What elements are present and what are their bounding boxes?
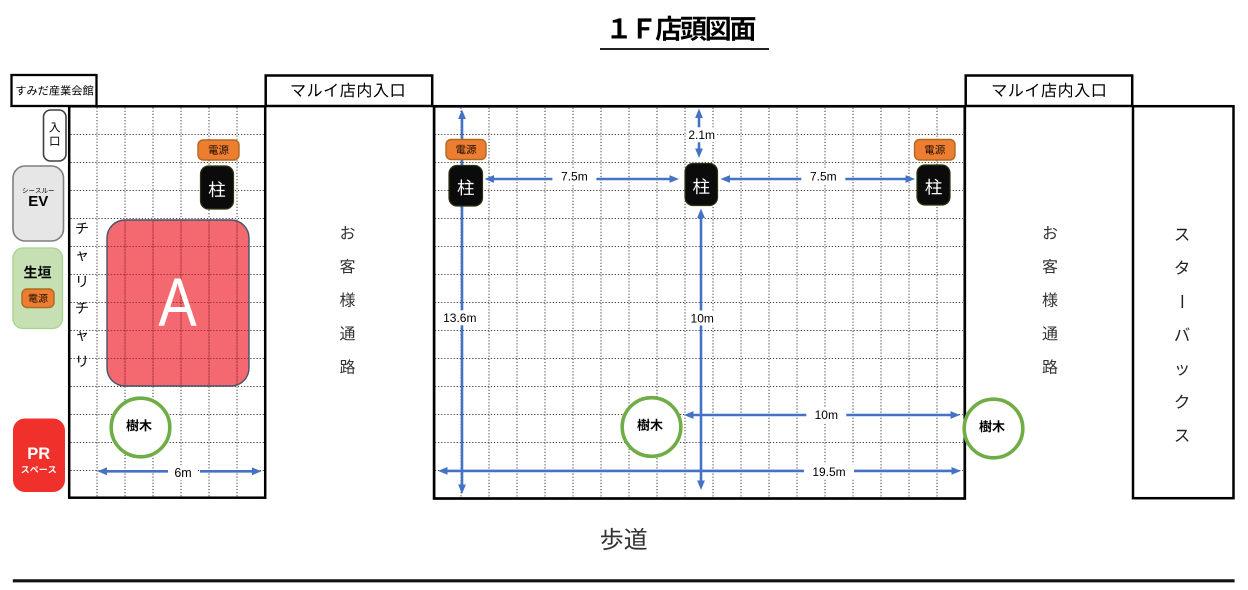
svg-text:EV: EV (28, 193, 48, 210)
svg-text:13.6m: 13.6m (443, 311, 476, 325)
svg-text:7.5m: 7.5m (810, 170, 837, 184)
svg-text:10m: 10m (691, 311, 714, 325)
svg-text:6m: 6m (174, 466, 191, 480)
svg-text:2.1m: 2.1m (688, 128, 715, 142)
svg-text:PR: PR (27, 445, 50, 463)
svg-text:7.5m: 7.5m (561, 170, 588, 184)
svg-text:10m: 10m (815, 408, 838, 422)
svg-text:A: A (158, 265, 197, 341)
svg-text:19.5m: 19.5m (812, 465, 845, 479)
